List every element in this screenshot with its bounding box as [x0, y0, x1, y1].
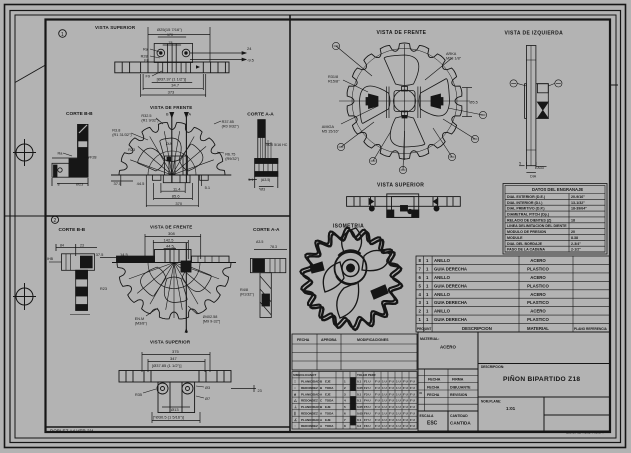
svg-text:1 U: 1 U	[382, 405, 387, 409]
svg-text:SIMBOLO/ANOT: SIMBOLO/ANOT	[293, 373, 316, 377]
svg-text:PLANICIDAD: PLANICIDAD	[301, 405, 320, 409]
svg-text:20-9/16": 20-9/16"	[571, 195, 585, 199]
svg-text:ACERO: ACERO	[530, 292, 546, 297]
svg-text:⊥: ⊥	[294, 405, 297, 409]
svg-text:0.1: 0.1	[357, 399, 362, 403]
svg-text:DESCRIPCION:: DESCRIPCION:	[481, 365, 504, 369]
svg-text:MATERIAL:: MATERIAL:	[420, 337, 440, 341]
svg-text:*Ø3: *Ø3	[259, 188, 265, 192]
svg-text:R37.85: R37.85	[222, 120, 234, 124]
svg-text:1 U: 1 U	[396, 418, 401, 422]
svg-text:PRO|UNT: PRO|UNT	[417, 327, 431, 331]
svg-text:1 U: 1 U	[382, 411, 387, 415]
svg-text:VISTA SUPERIOR: VISTA SUPERIOR	[377, 183, 424, 189]
svg-text:F U: F U	[403, 380, 408, 384]
svg-text:1 U: 1 U	[396, 386, 401, 390]
svg-text:(R0 9/32"): (R0 9/32")	[222, 125, 240, 129]
svg-text:VISTA DE FRENTE: VISTA DE FRENTE	[150, 225, 193, 230]
svg-text:44.5: 44.5	[137, 181, 146, 186]
svg-text:CORTE A-A: CORTE A-A	[253, 227, 280, 233]
svg-text:F U: F U	[375, 380, 380, 384]
svg-text:ACERO: ACERO	[530, 275, 546, 280]
svg-text:F U: F U	[375, 405, 380, 409]
svg-text:373: 373	[168, 90, 175, 95]
svg-text:M5 15/16": M5 15/16"	[322, 130, 340, 134]
svg-text:EJE: EJE	[325, 392, 331, 396]
svg-text:F U: F U	[403, 399, 408, 403]
svg-text:VISTA DE IZQUIERDA: VISTA DE IZQUIERDA	[505, 31, 564, 37]
svg-text:F U: F U	[389, 380, 394, 384]
svg-text:F2 U: F2 U	[364, 386, 371, 390]
svg-text:Ø3: Ø3	[205, 386, 210, 390]
svg-text:8: 8	[58, 183, 60, 187]
svg-text:F U: F U	[375, 392, 380, 396]
svg-text:0.1: 0.1	[357, 418, 362, 422]
svg-text:AMIGA: AMIGA	[322, 125, 335, 129]
svg-text:[Ø37.37 (1 1/2")]: [Ø37.37 (1 1/2")]	[157, 77, 186, 82]
svg-text:F U: F U	[389, 405, 394, 409]
svg-text:R4/8: R4/8	[240, 288, 248, 292]
svg-text:170: 170	[167, 33, 173, 37]
svg-text:F U: F U	[410, 411, 415, 415]
svg-text:F U: F U	[389, 411, 394, 415]
svg-text:[Ø37.85 (1 1/2")]: [Ø37.85 (1 1/2")]	[152, 363, 181, 368]
svg-text:MODULE: MODULE	[507, 236, 523, 240]
svg-text:1 U: 1 U	[396, 424, 401, 428]
svg-text:FECHA: FECHA	[428, 378, 441, 382]
svg-text:F U: F U	[410, 386, 415, 390]
svg-text:APROBA: APROBA	[321, 338, 337, 342]
svg-text:DIAL DEL BORDAJE: DIAL DEL BORDAJE	[507, 242, 543, 246]
svg-text:F U: F U	[403, 392, 408, 396]
svg-text:18: 18	[571, 218, 575, 222]
svg-text:REVISION: REVISION	[450, 393, 468, 397]
svg-text:F U: F U	[403, 386, 408, 390]
svg-text:13-1/32": 13-1/32"	[571, 201, 585, 205]
svg-text:F1 U: F1 U	[364, 380, 371, 384]
svg-text:F U: F U	[410, 399, 415, 403]
svg-text:R3.8: R3.8	[112, 129, 120, 133]
svg-text:⌀: ⌀	[294, 392, 296, 396]
svg-text:1 U: 1 U	[382, 392, 387, 396]
svg-text:F7 U: F7 U	[364, 418, 371, 422]
svg-text:DIAL PRIMITIVO (D.P.): DIAL PRIMITIVO (D.P.)	[507, 207, 545, 211]
svg-text:1 U: 1 U	[382, 399, 387, 403]
svg-text:TODA: TODA	[325, 411, 334, 415]
svg-text:370: 370	[175, 201, 182, 206]
svg-text:CORTE B-B: CORTE B-B	[66, 111, 93, 117]
svg-text:Ø23: Ø23	[76, 183, 83, 187]
svg-text:1 U: 1 U	[396, 399, 401, 403]
svg-text:REDONDEZ: REDONDEZ	[301, 424, 318, 428]
svg-text:ACERO: ACERO	[530, 309, 546, 314]
svg-text:○: ○	[294, 386, 296, 390]
svg-text:CORTE A-A: CORTE A-A	[247, 112, 274, 118]
svg-text:ESC: ESC	[427, 421, 438, 427]
svg-text:F U: F U	[375, 411, 380, 415]
svg-text:|A3.5|: |A3.5|	[261, 178, 270, 182]
svg-text:2: 2	[54, 218, 57, 224]
svg-text:(M3/8"): (M3/8")	[135, 322, 148, 326]
svg-text:CORTE B-B: CORTE B-B	[59, 227, 86, 233]
svg-text:PLASTICO: PLASTICO	[527, 283, 549, 288]
svg-text:5.1: 5.1	[205, 185, 211, 190]
svg-text:PASO DE LA CADENA: PASO DE LA CADENA	[507, 248, 545, 252]
svg-text:84: 84	[60, 244, 64, 248]
svg-text:MODIFICACIONES: MODIFICACIONES	[357, 338, 389, 342]
svg-text:78.3: 78.3	[270, 245, 277, 249]
svg-text:F U: F U	[375, 424, 380, 428]
svg-text:R23: R23	[128, 148, 135, 152]
svg-text:R31/8: R31/8	[328, 75, 338, 79]
svg-text:[*Ø30.5 (1 5/16")]: [*Ø30.5 (1 5/16")]	[153, 415, 184, 420]
svg-text:F U: F U	[389, 399, 394, 403]
svg-text:EJE: EJE	[325, 418, 331, 422]
svg-text:F U: F U	[410, 405, 415, 409]
svg-text:CANTIDAD: CANTIDAD	[450, 414, 468, 418]
svg-text:Ø25(15 7/16"): Ø25(15 7/16")	[157, 27, 183, 32]
svg-text:375: 375	[172, 349, 179, 354]
svg-text:VISTA DE FRENTE: VISTA DE FRENTE	[377, 30, 427, 36]
svg-text:85.6: 85.6	[172, 194, 181, 199]
svg-text:ACERO: ACERO	[440, 345, 456, 350]
svg-text:DIA: DIA	[530, 175, 537, 179]
svg-text:PLANICIDAD: PLANICIDAD	[301, 418, 320, 422]
svg-text:308: 308	[168, 231, 175, 236]
svg-text:TODA: TODA	[325, 399, 334, 403]
svg-text:(R1 9/32"): (R1 9/32")	[141, 119, 159, 123]
svg-text:VISTA DE FRENTE: VISTA DE FRENTE	[150, 105, 193, 110]
svg-text:23: 23	[80, 244, 84, 248]
svg-text:1 U: 1 U	[382, 418, 387, 422]
svg-text:RELACIO DE DIENTES (Z): RELACIO DE DIENTES (Z)	[507, 218, 552, 222]
svg-text:R15/8": R15/8"	[328, 80, 340, 84]
svg-text:F U: F U	[403, 418, 408, 422]
svg-text:REDONDEZ: REDONDEZ	[301, 411, 318, 415]
svg-text:A3.5: A3.5	[256, 240, 263, 244]
svg-text:FIRMA: FIRMA	[452, 378, 464, 382]
svg-text:Ø5.5: Ø5.5	[470, 101, 478, 105]
svg-text:∠: ∠	[294, 418, 297, 422]
svg-text:ARKA: ARKA	[446, 52, 457, 56]
svg-text:△: △	[293, 399, 297, 403]
svg-text:F28: F28	[90, 156, 97, 160]
svg-text:ANILLO: ANILLO	[434, 258, 451, 263]
svg-text:F9: F9	[146, 75, 150, 79]
svg-text:2-1/2": 2-1/2"	[571, 248, 581, 252]
svg-text:PLANO REFERENCIA: PLANO REFERENCIA	[574, 327, 607, 331]
svg-text:DESCRIPCION: DESCRIPCION	[462, 326, 492, 331]
svg-text:1 U: 1 U	[396, 405, 401, 409]
svg-text:PIÑON BIPARTIDO Z18: PIÑON BIPARTIDO Z18	[503, 374, 580, 383]
svg-text:F U: F U	[389, 418, 394, 422]
svg-text:37.5: 37.5	[96, 252, 105, 257]
svg-text:142.5: 142.5	[164, 237, 175, 242]
svg-text:2-3/4": 2-3/4"	[571, 242, 581, 246]
svg-text:F U: F U	[375, 386, 380, 390]
svg-text:0.05: 0.05	[357, 386, 363, 390]
svg-text:1 U: 1 U	[382, 424, 387, 428]
svg-text:PLASTICO: PLASTICO	[527, 317, 549, 322]
svg-text:GUIA DERECHA: GUIA DERECHA	[434, 266, 467, 271]
svg-text:M23 1/8": M23 1/8"	[446, 57, 462, 61]
svg-text:DIAL INTERIOR (D.I.): DIAL INTERIOR (D.I.)	[507, 201, 543, 205]
svg-text:PLANICIDAD: PLANICIDAD	[301, 380, 320, 384]
svg-text:VISTA SUPERIOR: VISTA SUPERIOR	[95, 25, 136, 30]
svg-text:GUIA DERECHA: GUIA DERECHA	[434, 317, 467, 322]
svg-text:F5 U: F5 U	[364, 405, 371, 409]
svg-text:11.4: 11.4	[173, 186, 181, 191]
svg-text:ESCALA 1:1 HOJA: ESCALA 1:1 HOJA	[566, 430, 603, 435]
svg-text:◌: ◌	[294, 424, 296, 428]
svg-text:-9.5: -9.5	[247, 58, 255, 63]
svg-text:F U: F U	[410, 418, 415, 422]
svg-text:F U: F U	[410, 392, 415, 396]
svg-text:ACERO: ACERO	[530, 258, 546, 263]
svg-text:TODA: TODA	[325, 386, 334, 390]
svg-text:Ø402.58: Ø402.58	[203, 315, 218, 319]
svg-text:F U: F U	[375, 399, 380, 403]
svg-text:DIBUJANTE: DIBUJANTE	[450, 386, 471, 390]
svg-text:EJE: EJE	[325, 405, 331, 409]
svg-text:0.1: 0.1	[357, 380, 362, 384]
svg-text:[M9 9-32"]: [M9 9-32"]	[203, 320, 220, 324]
svg-text:∥: ∥	[294, 411, 296, 415]
svg-text:F3 U: F3 U	[364, 392, 371, 396]
svg-text:ANILLO: ANILLO	[434, 292, 451, 297]
svg-text:R35: R35	[135, 393, 142, 397]
svg-text:N: N	[420, 391, 422, 395]
svg-text:ANILLO: ANILLO	[434, 275, 451, 280]
svg-text:F U: F U	[403, 424, 408, 428]
svg-text:GUIA DERECHA: GUIA DERECHA	[434, 300, 467, 305]
svg-text:PLASTICO: PLASTICO	[527, 300, 549, 305]
svg-text:24: 24	[247, 46, 252, 51]
svg-text:MODULO DE PRESION: MODULO DE PRESION	[507, 230, 547, 234]
svg-text:FECHA: FECHA	[427, 386, 440, 390]
svg-text:MATERIAL: MATERIAL	[527, 326, 549, 331]
svg-text:1 U: 1 U	[396, 380, 401, 384]
svg-text:1:01: 1:01	[506, 406, 516, 411]
svg-text:EJE: EJE	[325, 380, 331, 384]
svg-text:Ø13: Ø13	[171, 407, 179, 412]
svg-text:TOLER PERF: TOLER PERF	[357, 373, 376, 377]
svg-text:R23: R23	[100, 287, 107, 291]
svg-text:44.5: 44.5	[166, 243, 175, 248]
svg-text:ANILLO: ANILLO	[434, 309, 451, 314]
svg-text:(R1 31/32"): (R1 31/32")	[112, 133, 132, 137]
svg-text:DATOS DEL ENGRANAJE: DATOS DEL ENGRANAJE	[532, 187, 583, 192]
svg-text:F U: F U	[389, 386, 394, 390]
svg-text:Ø7: Ø7	[205, 397, 210, 401]
svg-text:IHB: IHB	[47, 257, 54, 261]
svg-text:1 U: 1 U	[396, 392, 401, 396]
svg-text:18-39/64": 18-39/64"	[571, 207, 587, 211]
svg-text:1 U: 1 U	[396, 411, 401, 415]
svg-text:F U: F U	[403, 405, 408, 409]
svg-text:EN.M: EN.M	[135, 317, 145, 321]
svg-text:0.1: 0.1	[357, 392, 362, 396]
svg-text:F6 U: F6 U	[364, 411, 371, 415]
svg-text:(R9/32"): (R9/32")	[225, 157, 240, 161]
svg-text:REDONDEZ: REDONDEZ	[301, 386, 318, 390]
svg-text:34.7: 34.7	[171, 83, 180, 88]
svg-text:F U: F U	[389, 424, 394, 428]
svg-text:R6.75: R6.75	[225, 153, 235, 157]
svg-text:F U: F U	[375, 418, 380, 422]
svg-text:F U: F U	[403, 411, 408, 415]
svg-text:A33: A33	[537, 166, 543, 170]
svg-text:(R1/32"): (R1/32")	[240, 293, 255, 297]
svg-text:0.05: 0.05	[357, 411, 363, 415]
svg-text:DOBLEZ A4 VER 2/4: DOBLEZ A4 VER 2/4	[50, 429, 94, 434]
svg-text:TODA: TODA	[325, 424, 334, 428]
svg-text:VISTA SUPERIOR: VISTA SUPERIOR	[150, 340, 191, 345]
svg-text:REDONDEZ: REDONDEZ	[301, 399, 318, 403]
svg-text:FECHA: FECHA	[427, 393, 440, 397]
svg-text:□: □	[294, 380, 296, 384]
svg-text:1 U: 1 U	[382, 380, 387, 384]
svg-text:20: 20	[571, 230, 575, 234]
svg-text:1: 1	[61, 32, 64, 38]
svg-text:F8 U: F8 U	[364, 424, 371, 428]
svg-text:NOM.PLANE:: NOM.PLANE:	[481, 400, 501, 404]
svg-text:1 U: 1 U	[382, 386, 387, 390]
svg-text:347: 347	[170, 356, 177, 361]
svg-text:DIA: DIA	[166, 142, 173, 146]
svg-text:PLANICIDAD: PLANICIDAD	[301, 392, 320, 396]
svg-text:23: 23	[258, 389, 262, 393]
svg-text:R32.5: R32.5	[141, 114, 151, 118]
svg-text:F8: F8	[144, 58, 148, 62]
svg-text:F U: F U	[389, 392, 394, 396]
svg-text:LINEA DELIMITACION DEL DIENTE: LINEA DELIMITACION DEL DIENTE	[507, 224, 567, 228]
svg-text:8.38: 8.38	[571, 236, 578, 240]
svg-text:FECHA: FECHA	[297, 338, 310, 342]
svg-text:5: 5	[519, 162, 521, 166]
svg-text:0.2: 0.2	[357, 424, 362, 428]
svg-text:5.1: 5.1	[248, 178, 253, 182]
svg-text:F U: F U	[410, 380, 415, 384]
svg-text:F U: F U	[410, 424, 415, 428]
svg-text:DIAL EXTERIOR (D.E.): DIAL EXTERIOR (D.E.)	[507, 195, 546, 199]
svg-text:CANTIDA: CANTIDA	[450, 421, 471, 426]
svg-text:DIAMETRAL PITCH (Dp.): DIAMETRAL PITCH (Dp.)	[507, 213, 550, 217]
svg-text:F4 U: F4 U	[364, 399, 371, 403]
svg-text:GUIA DERECHA: GUIA DERECHA	[434, 283, 467, 288]
svg-text:PLASTICO: PLASTICO	[527, 266, 549, 271]
svg-text:ESCALA: ESCALA	[420, 414, 434, 418]
svg-text:0.05: 0.05	[357, 405, 363, 409]
